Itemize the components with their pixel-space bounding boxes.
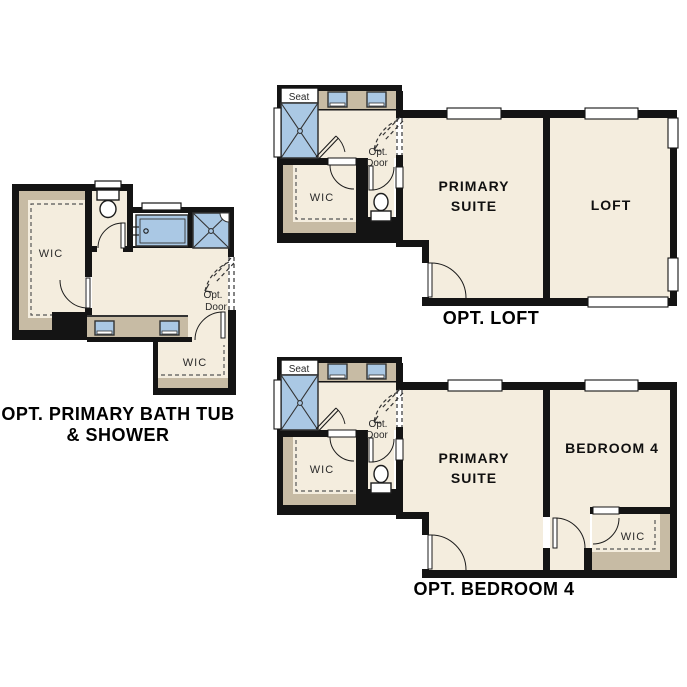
window-suite-top xyxy=(447,108,501,119)
wic-label: WIC xyxy=(39,248,63,260)
primary-suite-label-2: SUITE xyxy=(451,198,497,214)
floorplan-sheet: WIC WIC Opt. Door OPT. PRIMARY BATH TUB … xyxy=(0,0,687,687)
window-loft-right-1 xyxy=(668,118,678,148)
window-shower-left xyxy=(274,108,281,157)
plan-opt-loft: PRIMARY SUITE LOFT OPT. LOFT xyxy=(403,108,678,328)
shower xyxy=(193,213,229,248)
sink-right xyxy=(160,321,179,335)
floorplan-canvas: WIC WIC Opt. Door OPT. PRIMARY BATH TUB … xyxy=(0,0,687,687)
caption-bedroom4: OPT. BEDROOM 4 xyxy=(413,579,574,599)
bathtub xyxy=(130,215,188,246)
bedroom4-wic-label: WIC xyxy=(621,531,645,543)
seat-label: Seat xyxy=(289,92,310,103)
primary-suite2-label-2: SUITE xyxy=(451,470,497,486)
window-tub xyxy=(142,203,181,210)
primary-suite2-label-1: PRIMARY xyxy=(438,450,509,466)
caption-bath-line1: OPT. PRIMARY BATH TUB xyxy=(1,404,234,424)
bedroom4-wic-opening xyxy=(593,507,619,514)
window-loft-right-2 xyxy=(668,258,678,291)
window-loft-top xyxy=(585,108,638,119)
primary-suite-label-1: PRIMARY xyxy=(438,178,509,194)
wic-lower-label: WIC xyxy=(183,357,207,369)
bath-sink-right xyxy=(367,92,386,107)
loft-label: LOFT xyxy=(591,197,632,213)
bath-wic-opening xyxy=(328,158,356,165)
window-toilet xyxy=(95,181,121,188)
toilet-cased-opening xyxy=(396,167,403,188)
shower-stall xyxy=(281,103,318,158)
opt-door-label-2: Door xyxy=(205,302,227,313)
window-bedroom4-top xyxy=(585,380,638,391)
window-suite2-top xyxy=(448,380,502,391)
vanity-counter xyxy=(87,315,188,337)
plan-opt-bedroom4: PRIMARY SUITE BEDROOM 4 WIC OPT. BEDROOM… xyxy=(403,380,677,599)
caption-loft: OPT. LOFT xyxy=(443,308,540,328)
bath-opt-door-label-2: Door xyxy=(366,158,388,169)
bath-opt-door-label-1: Opt. xyxy=(369,147,388,158)
bath-sink-left xyxy=(328,92,347,107)
bath-wic-label: WIC xyxy=(310,192,334,204)
plan-opt-primary-bath: WIC WIC Opt. Door OPT. PRIMARY BATH TUB … xyxy=(1,181,236,445)
opt-door-label-1: Opt. xyxy=(204,290,223,301)
window-loft-bottom xyxy=(588,297,668,307)
sink-left xyxy=(95,321,114,335)
bedroom4-label: BEDROOM 4 xyxy=(565,440,659,456)
caption-bath-line2: & SHOWER xyxy=(67,425,170,445)
